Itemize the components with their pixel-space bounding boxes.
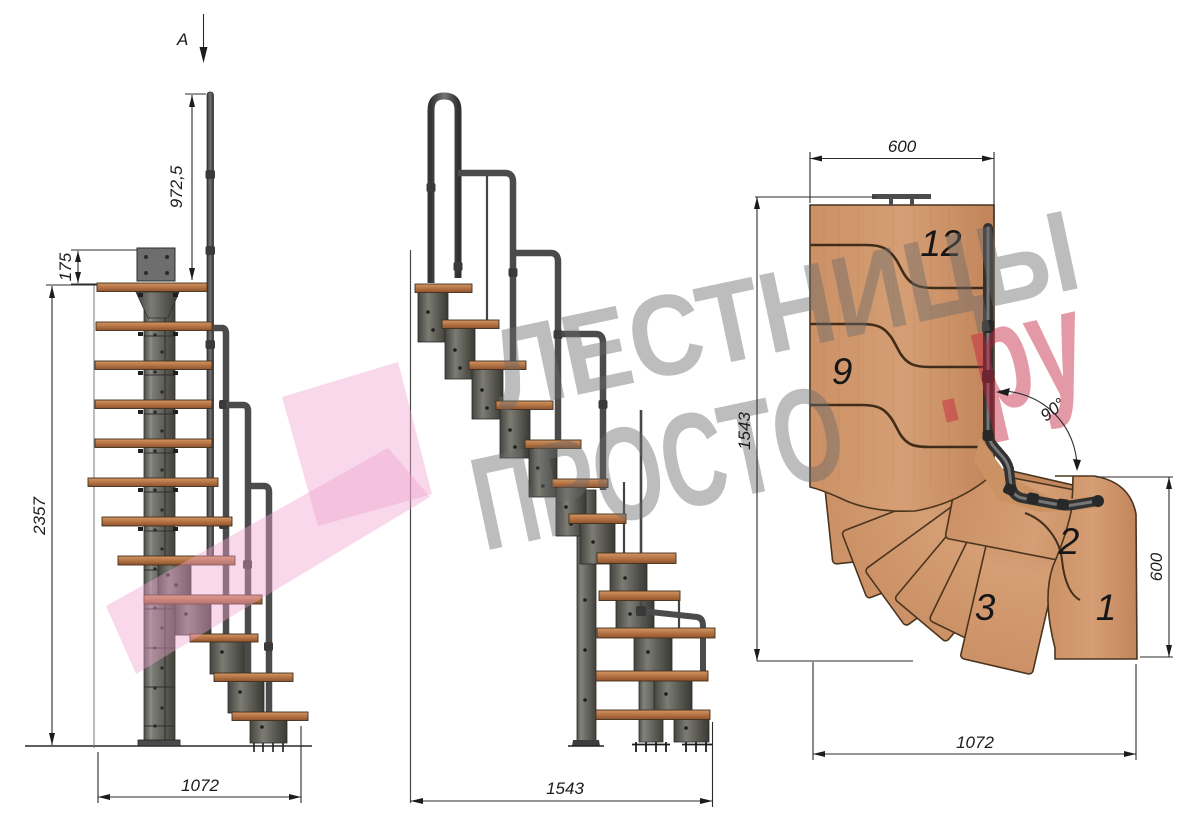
svg-text:1072: 1072 <box>956 733 994 752</box>
svg-text:1072: 1072 <box>181 776 219 795</box>
svg-text:2: 2 <box>1058 521 1080 562</box>
svg-text:2357: 2357 <box>30 497 49 536</box>
svg-text:175: 175 <box>56 252 75 281</box>
svg-text:600: 600 <box>888 137 917 156</box>
svg-text:972,5: 972,5 <box>167 165 186 208</box>
svg-text:1: 1 <box>1096 587 1117 628</box>
svg-text:A: A <box>176 30 188 49</box>
svg-text:1543: 1543 <box>546 779 584 798</box>
svg-text:1543: 1543 <box>735 412 754 450</box>
svg-text:600: 600 <box>1147 552 1166 581</box>
svg-text:3: 3 <box>975 587 996 628</box>
